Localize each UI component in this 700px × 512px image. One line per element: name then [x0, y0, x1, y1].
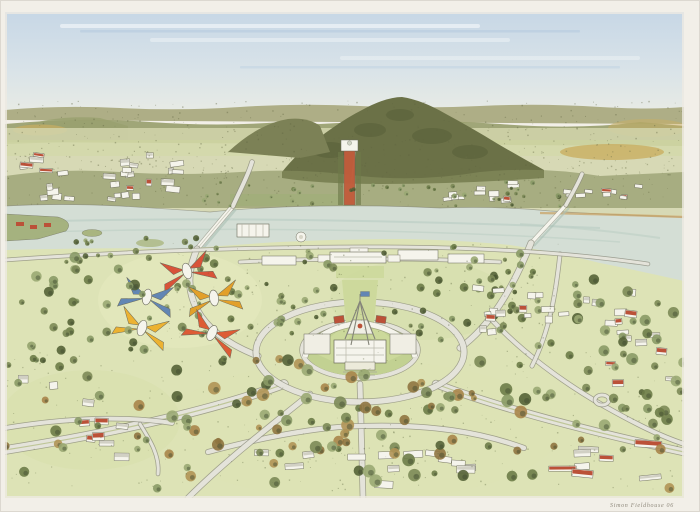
speckle — [178, 118, 179, 119]
speckle — [533, 285, 534, 286]
high-court — [398, 250, 438, 260]
speckle — [639, 173, 640, 174]
speckle — [171, 173, 172, 174]
speckle — [123, 440, 124, 441]
tree-shadow — [227, 279, 230, 282]
tree-shadow — [490, 295, 493, 298]
sky-streak — [240, 66, 620, 69]
speckle — [395, 159, 396, 160]
speckle — [630, 448, 631, 449]
speckle — [656, 364, 657, 365]
building — [107, 197, 116, 202]
speckle — [65, 378, 66, 379]
tree-shadow — [273, 462, 277, 466]
speckle — [447, 188, 448, 189]
tree-row — [338, 152, 343, 205]
tree-row — [356, 152, 361, 205]
speckle — [285, 339, 286, 340]
tree-shadow — [604, 424, 609, 429]
tree-shadow — [647, 408, 651, 412]
speckle — [425, 477, 426, 478]
tree-shadow — [287, 359, 292, 364]
speckle — [138, 141, 139, 142]
building-body — [477, 186, 486, 191]
speckle — [335, 170, 336, 171]
speckle — [504, 173, 505, 174]
speckle — [16, 474, 17, 475]
speckle — [593, 133, 594, 134]
speckle — [576, 127, 577, 128]
speckle — [667, 107, 668, 108]
speckle — [461, 405, 462, 406]
speckle — [167, 331, 168, 332]
tree-shadow — [454, 409, 457, 412]
building — [92, 432, 104, 440]
speckle — [227, 426, 228, 427]
speckle — [290, 130, 291, 131]
speckle — [149, 397, 150, 398]
speckle — [364, 165, 365, 166]
speckle — [173, 104, 174, 105]
speckle — [69, 198, 70, 199]
speckle — [184, 449, 185, 450]
speckle — [408, 205, 409, 206]
building — [656, 347, 667, 355]
speckle — [273, 482, 274, 483]
speckle — [321, 321, 322, 322]
tree-shadow — [268, 380, 273, 385]
speckle — [448, 324, 449, 325]
speckle — [583, 162, 584, 163]
speckle — [358, 249, 359, 250]
speckle — [572, 115, 573, 116]
speckle — [629, 151, 630, 152]
speckle — [383, 144, 384, 145]
speckle — [161, 377, 162, 378]
speckle — [58, 101, 59, 102]
speckle — [456, 112, 457, 113]
speckle — [427, 159, 428, 160]
tree-shadow — [403, 185, 404, 186]
speckle — [520, 207, 521, 208]
speckle — [171, 338, 172, 339]
tree-shadow — [231, 291, 234, 294]
speckle — [100, 437, 101, 438]
roof-shade — [115, 454, 129, 458]
speckle — [664, 362, 665, 363]
speckle — [309, 459, 310, 460]
speckle — [454, 156, 455, 157]
speckle — [245, 148, 246, 149]
speckle — [397, 313, 398, 314]
speckle — [494, 420, 495, 421]
speckle — [66, 156, 67, 157]
building — [480, 326, 487, 333]
speckle — [167, 449, 168, 450]
speckle — [174, 120, 175, 121]
speckle — [294, 182, 295, 183]
speckle — [501, 262, 502, 263]
speckle — [300, 245, 301, 246]
building — [519, 305, 527, 312]
building — [527, 292, 535, 299]
speckle — [69, 156, 70, 157]
speckle — [613, 487, 614, 488]
tree-shadow — [74, 256, 79, 261]
speckle — [65, 113, 66, 114]
building-body — [57, 170, 68, 176]
roof-shade — [636, 340, 646, 343]
speckle — [650, 157, 651, 158]
speckle — [224, 152, 225, 153]
tree-shadow — [281, 295, 284, 298]
tree-shadow — [384, 253, 386, 255]
tree-shadow — [439, 453, 444, 458]
speckle — [341, 274, 342, 275]
tree-shadow — [457, 394, 462, 399]
building — [129, 163, 138, 168]
speckle — [418, 139, 419, 140]
speckle — [554, 309, 555, 310]
speckle — [156, 165, 157, 166]
tree-shadow — [569, 354, 573, 358]
tree-shadow — [400, 189, 402, 191]
speckle — [352, 136, 353, 137]
speckle — [498, 180, 499, 181]
speckle — [291, 448, 292, 449]
speckle — [560, 181, 561, 182]
speckle — [438, 273, 439, 274]
tree-shadow — [88, 279, 92, 283]
tree-shadow — [452, 318, 455, 321]
speckle — [508, 157, 509, 158]
speckle — [233, 376, 234, 377]
speckle — [227, 112, 228, 113]
red-roof — [334, 315, 345, 323]
speckle — [576, 121, 577, 122]
building-body — [489, 191, 499, 197]
building — [20, 162, 33, 168]
building — [46, 183, 53, 190]
speckle — [282, 387, 283, 388]
speckle — [585, 116, 586, 117]
speckle — [532, 161, 533, 162]
building — [635, 184, 643, 188]
speckle — [505, 159, 506, 160]
speckle — [390, 175, 391, 176]
speckle — [539, 257, 540, 258]
speckle — [58, 187, 59, 188]
national-gallery — [448, 254, 484, 263]
tree-shadow — [60, 349, 64, 353]
speckle — [225, 363, 226, 364]
speckle — [555, 187, 556, 188]
speckle — [75, 120, 76, 121]
tree-shadow — [615, 366, 618, 369]
tree-shadow — [550, 393, 555, 398]
speckle — [335, 311, 336, 312]
speckle — [364, 329, 365, 330]
tree-shadow — [524, 196, 526, 198]
speckle — [441, 177, 442, 178]
speckle — [655, 154, 656, 155]
speckle — [472, 244, 473, 245]
tree-shadow — [309, 255, 313, 259]
speckle — [625, 208, 626, 209]
speckle — [252, 292, 253, 293]
speckle — [115, 126, 116, 127]
speckle — [363, 149, 364, 150]
speckle — [527, 448, 528, 449]
speckle — [35, 132, 36, 133]
tree-shadow — [660, 448, 665, 453]
speckle — [231, 167, 232, 168]
speckle — [525, 353, 526, 354]
tree-shadow — [304, 300, 307, 303]
speckle — [235, 333, 236, 334]
tree-shadow — [388, 413, 392, 417]
speckle — [572, 167, 573, 168]
speckle — [524, 180, 525, 181]
speckle — [187, 125, 188, 126]
tree-shadow — [331, 445, 336, 450]
speckle — [571, 445, 572, 446]
speckle — [617, 121, 618, 122]
speckle — [43, 123, 44, 124]
speckle — [367, 169, 368, 170]
speckle — [127, 157, 128, 158]
tree-shadow — [293, 307, 295, 309]
australian-flag — [361, 292, 370, 297]
speckle — [573, 168, 574, 169]
speckle — [23, 121, 24, 122]
tree-shadow — [294, 189, 296, 191]
island — [82, 230, 102, 237]
speckle — [101, 176, 102, 177]
speckle — [367, 171, 368, 172]
speckle — [335, 463, 336, 464]
speckle — [274, 126, 275, 127]
speckle — [257, 460, 258, 461]
tree-shadow — [66, 261, 68, 263]
tree-shadow — [129, 285, 132, 288]
speckle — [574, 394, 575, 395]
speckle — [68, 423, 69, 424]
tree-shadow — [171, 415, 177, 421]
speckle — [507, 132, 508, 133]
speckle — [322, 202, 323, 203]
speckle — [371, 147, 372, 148]
speckle — [546, 204, 547, 205]
speckle — [322, 333, 323, 334]
speckle — [289, 159, 290, 160]
speckle — [657, 405, 658, 406]
tree-shadow — [306, 397, 311, 402]
speckle — [448, 454, 449, 455]
speckle — [133, 161, 134, 162]
speckle — [620, 145, 621, 146]
speckle — [466, 157, 467, 158]
building — [545, 316, 552, 323]
tree-shadow — [345, 417, 350, 422]
speckle — [414, 101, 415, 102]
speckle — [250, 117, 251, 118]
speckle — [202, 172, 203, 173]
speckle — [282, 292, 283, 293]
speckle — [667, 188, 668, 189]
speckle — [9, 198, 10, 199]
speckle — [292, 360, 293, 361]
tree-shadow — [532, 182, 534, 184]
building-body — [524, 313, 531, 317]
speckle — [414, 104, 415, 105]
tree-shadow — [48, 291, 52, 295]
speckle — [486, 418, 487, 419]
speckle — [61, 176, 62, 177]
speckle — [160, 188, 161, 189]
tree-shadow — [438, 279, 441, 282]
tree-shadow — [538, 345, 541, 348]
speckle — [495, 451, 496, 452]
speckle — [297, 205, 298, 206]
speckle — [362, 463, 363, 464]
speckle — [231, 461, 232, 462]
tree-shadow — [59, 366, 63, 370]
speckle — [133, 361, 134, 362]
speckle — [515, 437, 516, 438]
speckle — [425, 460, 426, 461]
speckle — [105, 166, 106, 167]
tree-shadow — [410, 325, 412, 327]
speckle — [507, 365, 508, 366]
tree-shadow — [421, 382, 425, 386]
tree-shadow — [412, 386, 417, 391]
roof-shade — [584, 297, 589, 300]
speckle — [639, 172, 640, 173]
tree-shadow — [72, 301, 76, 305]
speckle — [405, 140, 406, 141]
speckle — [495, 163, 496, 164]
speckle — [183, 255, 184, 256]
building — [49, 382, 58, 390]
speckle — [218, 205, 219, 206]
tree-shadow — [223, 358, 226, 361]
speckle — [334, 139, 335, 140]
building-body — [576, 193, 586, 198]
speckle — [679, 410, 680, 411]
speckle — [501, 166, 502, 167]
tree-shadow — [18, 382, 22, 386]
building — [576, 193, 586, 198]
speckle — [414, 172, 415, 173]
speckle — [118, 136, 119, 137]
speckle — [604, 159, 605, 160]
tree-shadow — [216, 248, 218, 250]
tree-shadow — [220, 182, 221, 183]
speckle — [371, 474, 372, 475]
building — [620, 195, 627, 199]
building — [146, 179, 152, 186]
speckle — [527, 283, 528, 284]
speckle — [214, 178, 215, 179]
speckle — [237, 480, 238, 481]
speckle — [517, 312, 518, 313]
tree-shadow — [53, 326, 57, 330]
tree-shadow — [118, 268, 122, 272]
speckle — [615, 160, 616, 161]
speckle — [242, 404, 243, 405]
tree-shadow — [657, 303, 660, 306]
tree-shadow — [479, 360, 484, 365]
speckle — [367, 110, 368, 111]
speckle — [91, 457, 92, 458]
speckle — [209, 253, 210, 254]
speckle — [615, 169, 616, 170]
building — [57, 170, 68, 176]
tree-shadow — [463, 286, 467, 290]
speckle — [99, 387, 100, 388]
speckle — [543, 157, 544, 158]
tree-shadow — [351, 376, 356, 381]
tree-shadow — [292, 445, 296, 449]
speckle — [527, 135, 528, 136]
speckle — [403, 437, 404, 438]
speckle — [426, 166, 427, 167]
speckle — [512, 119, 513, 120]
tree-shadow — [106, 331, 110, 335]
speckle — [56, 405, 57, 406]
speckle — [361, 314, 362, 315]
speckle — [278, 191, 279, 192]
speckle — [133, 188, 134, 189]
speckle — [269, 155, 270, 156]
speckle — [160, 178, 161, 179]
red-roof — [127, 186, 133, 189]
tree-shadow — [603, 350, 608, 355]
speckle — [34, 449, 35, 450]
tree-shadow — [666, 418, 671, 423]
tree-shadow — [505, 388, 511, 394]
speckle — [95, 108, 96, 109]
building — [584, 189, 592, 193]
speckle — [205, 204, 206, 205]
speckle — [165, 459, 166, 460]
speckle — [667, 170, 668, 171]
speckle — [258, 139, 259, 140]
speckle — [64, 123, 65, 124]
speckle — [274, 190, 275, 191]
speckle — [269, 450, 270, 451]
speckle — [288, 246, 289, 247]
speckle — [385, 164, 386, 165]
speckle — [676, 118, 677, 119]
tree-shadow — [511, 475, 516, 480]
speckle — [331, 298, 332, 299]
speckle — [450, 135, 451, 136]
tree-shadow — [358, 470, 363, 475]
building-body — [527, 292, 535, 299]
speckle — [512, 362, 513, 363]
tree-shadow — [133, 341, 137, 345]
building-body — [487, 328, 496, 335]
main-building — [334, 340, 386, 363]
speckle — [395, 144, 396, 145]
speckle — [598, 437, 599, 438]
tree-shadow — [236, 403, 240, 407]
speckle — [400, 201, 401, 202]
speckle — [214, 287, 215, 288]
speckle — [480, 244, 481, 245]
